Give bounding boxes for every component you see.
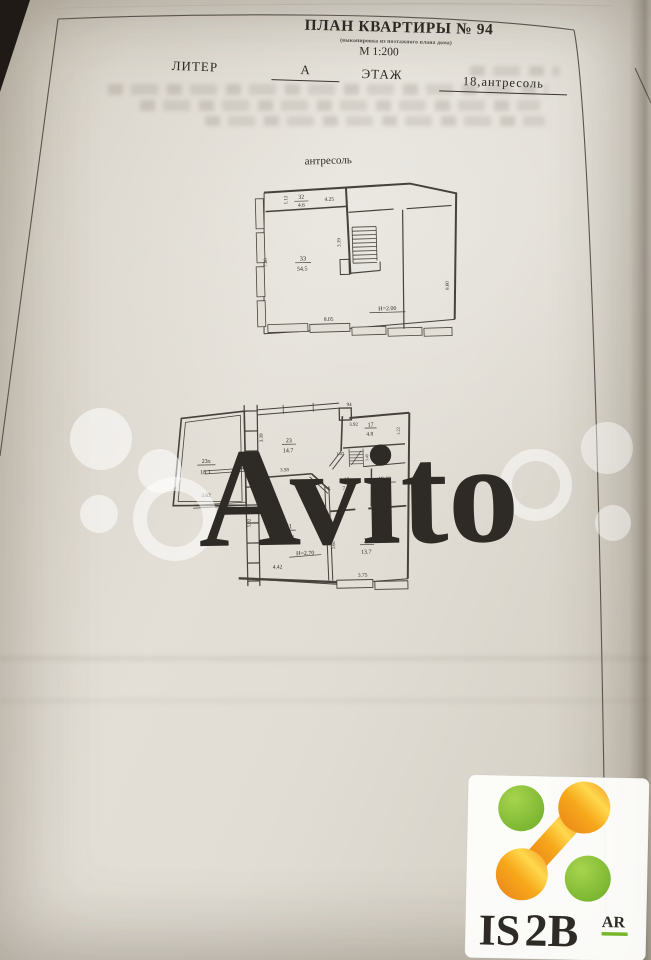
room-area-33: 54.5 bbox=[297, 266, 308, 272]
room-number-18: 18 bbox=[344, 477, 350, 483]
dim-label: 3.19 bbox=[337, 238, 342, 247]
paper-crease bbox=[0, 655, 651, 662]
dim-label: 3.75 bbox=[358, 573, 368, 579]
window-hatch-bottom bbox=[268, 319, 452, 340]
stairs bbox=[349, 449, 363, 467]
height-note: Н=2.00 bbox=[378, 306, 396, 313]
window-hatch-bottom bbox=[337, 579, 408, 590]
room-number-23x: 23х bbox=[202, 459, 211, 465]
dim-label: 3.39 bbox=[260, 433, 265, 442]
main-floor-plan: 94 3.92 17 4.8 1.22 3.39 23 14.7 23х 18.… bbox=[171, 401, 413, 594]
dim-label: 4.25 bbox=[324, 197, 334, 203]
dim-label: 8.05 bbox=[324, 317, 334, 323]
room-area-18: 7.0 bbox=[342, 486, 349, 492]
mezzanine-plan: антресоль bbox=[253, 151, 460, 341]
room-area-23x: 18.1 bbox=[200, 470, 211, 476]
dim-label: 3.92 bbox=[349, 423, 358, 428]
room-number-23: 23 bbox=[286, 438, 292, 444]
room-number-17: 17 bbox=[367, 422, 373, 428]
dim-label: 1.22 bbox=[396, 427, 401, 435]
dim-label: 94 bbox=[347, 403, 353, 408]
dim-label: 3.66 bbox=[331, 541, 336, 550]
dim-label: 8.60 bbox=[446, 281, 451, 290]
paper-crease bbox=[0, 697, 651, 704]
is2b-logo: IS 2B AR bbox=[464, 774, 650, 960]
dim-label: 1.12 bbox=[284, 195, 289, 204]
room-number-19-20: 19-20 bbox=[378, 476, 391, 482]
room-number-21: 21 bbox=[285, 523, 292, 530]
stairs bbox=[352, 227, 377, 264]
dim-label: 7.20 bbox=[264, 258, 269, 267]
photo-of-floorplan-document: ПЛАН КВАРТИРЫ № 94 (выкопировка из поэта… bbox=[0, 0, 651, 960]
mezzanine-caption: антресоль bbox=[304, 154, 351, 167]
room-area-22: 13.7 bbox=[361, 550, 372, 556]
dim-label: 1.47 bbox=[336, 451, 345, 456]
room-area-19-20: 6.7 bbox=[381, 486, 388, 492]
dim-label: 3.62 bbox=[201, 493, 211, 499]
logo-ar-underline bbox=[602, 932, 628, 936]
room-area-21: 21.4 bbox=[284, 535, 295, 541]
logo-text-2b: 2B bbox=[524, 904, 579, 956]
logo-text-ar: AR bbox=[602, 914, 626, 931]
dim-label: 4.42 bbox=[273, 564, 283, 570]
logo-text-is: IS bbox=[478, 905, 521, 955]
room-area-32: 4.6 bbox=[298, 203, 305, 209]
room-number-22: 22 bbox=[364, 538, 371, 545]
dim-label: 5.02 bbox=[247, 518, 252, 527]
room-number-33: 33 bbox=[300, 256, 307, 263]
room-number-32: 32 bbox=[298, 195, 304, 201]
room-area-23: 14.7 bbox=[283, 448, 294, 454]
height-note: Н=2.70 bbox=[296, 551, 314, 557]
dim-label: 3.58 bbox=[280, 468, 289, 473]
room-area-17: 4.8 bbox=[366, 431, 373, 437]
dim-label: 1.98 bbox=[374, 501, 383, 506]
dim-label: 3.49 bbox=[364, 454, 369, 461]
